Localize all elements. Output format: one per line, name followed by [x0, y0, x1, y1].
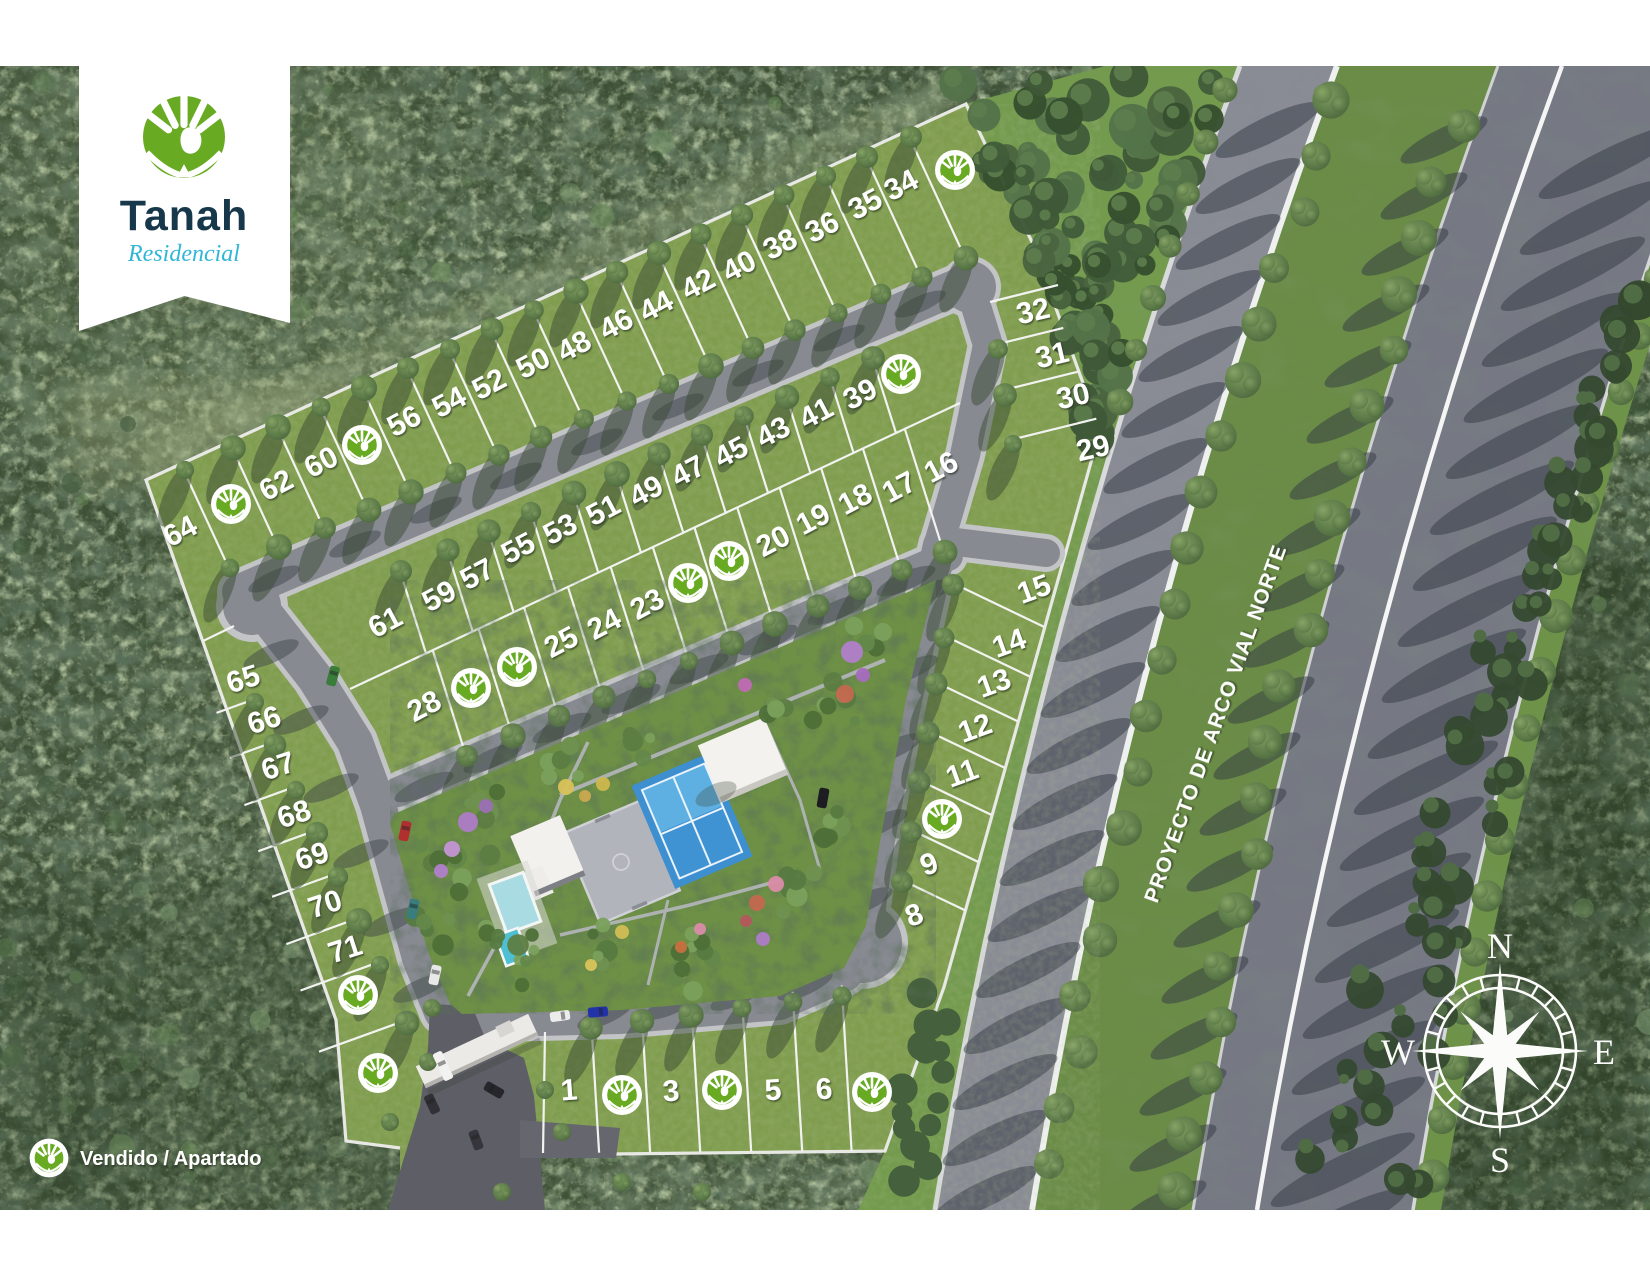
svg-text:N: N: [1487, 926, 1513, 966]
svg-text:Residencial: Residencial: [127, 241, 240, 267]
svg-text:6: 6: [815, 1072, 834, 1106]
svg-text:Tanah: Tanah: [120, 192, 248, 240]
svg-text:E: E: [1593, 1032, 1615, 1072]
svg-text:5: 5: [764, 1073, 783, 1107]
svg-text:S: S: [1490, 1140, 1510, 1180]
svg-text:1: 1: [560, 1073, 579, 1107]
svg-text:3: 3: [662, 1074, 681, 1108]
svg-text:W: W: [1381, 1032, 1415, 1072]
svg-text:Vendido / Apartado: Vendido / Apartado: [80, 1148, 262, 1170]
